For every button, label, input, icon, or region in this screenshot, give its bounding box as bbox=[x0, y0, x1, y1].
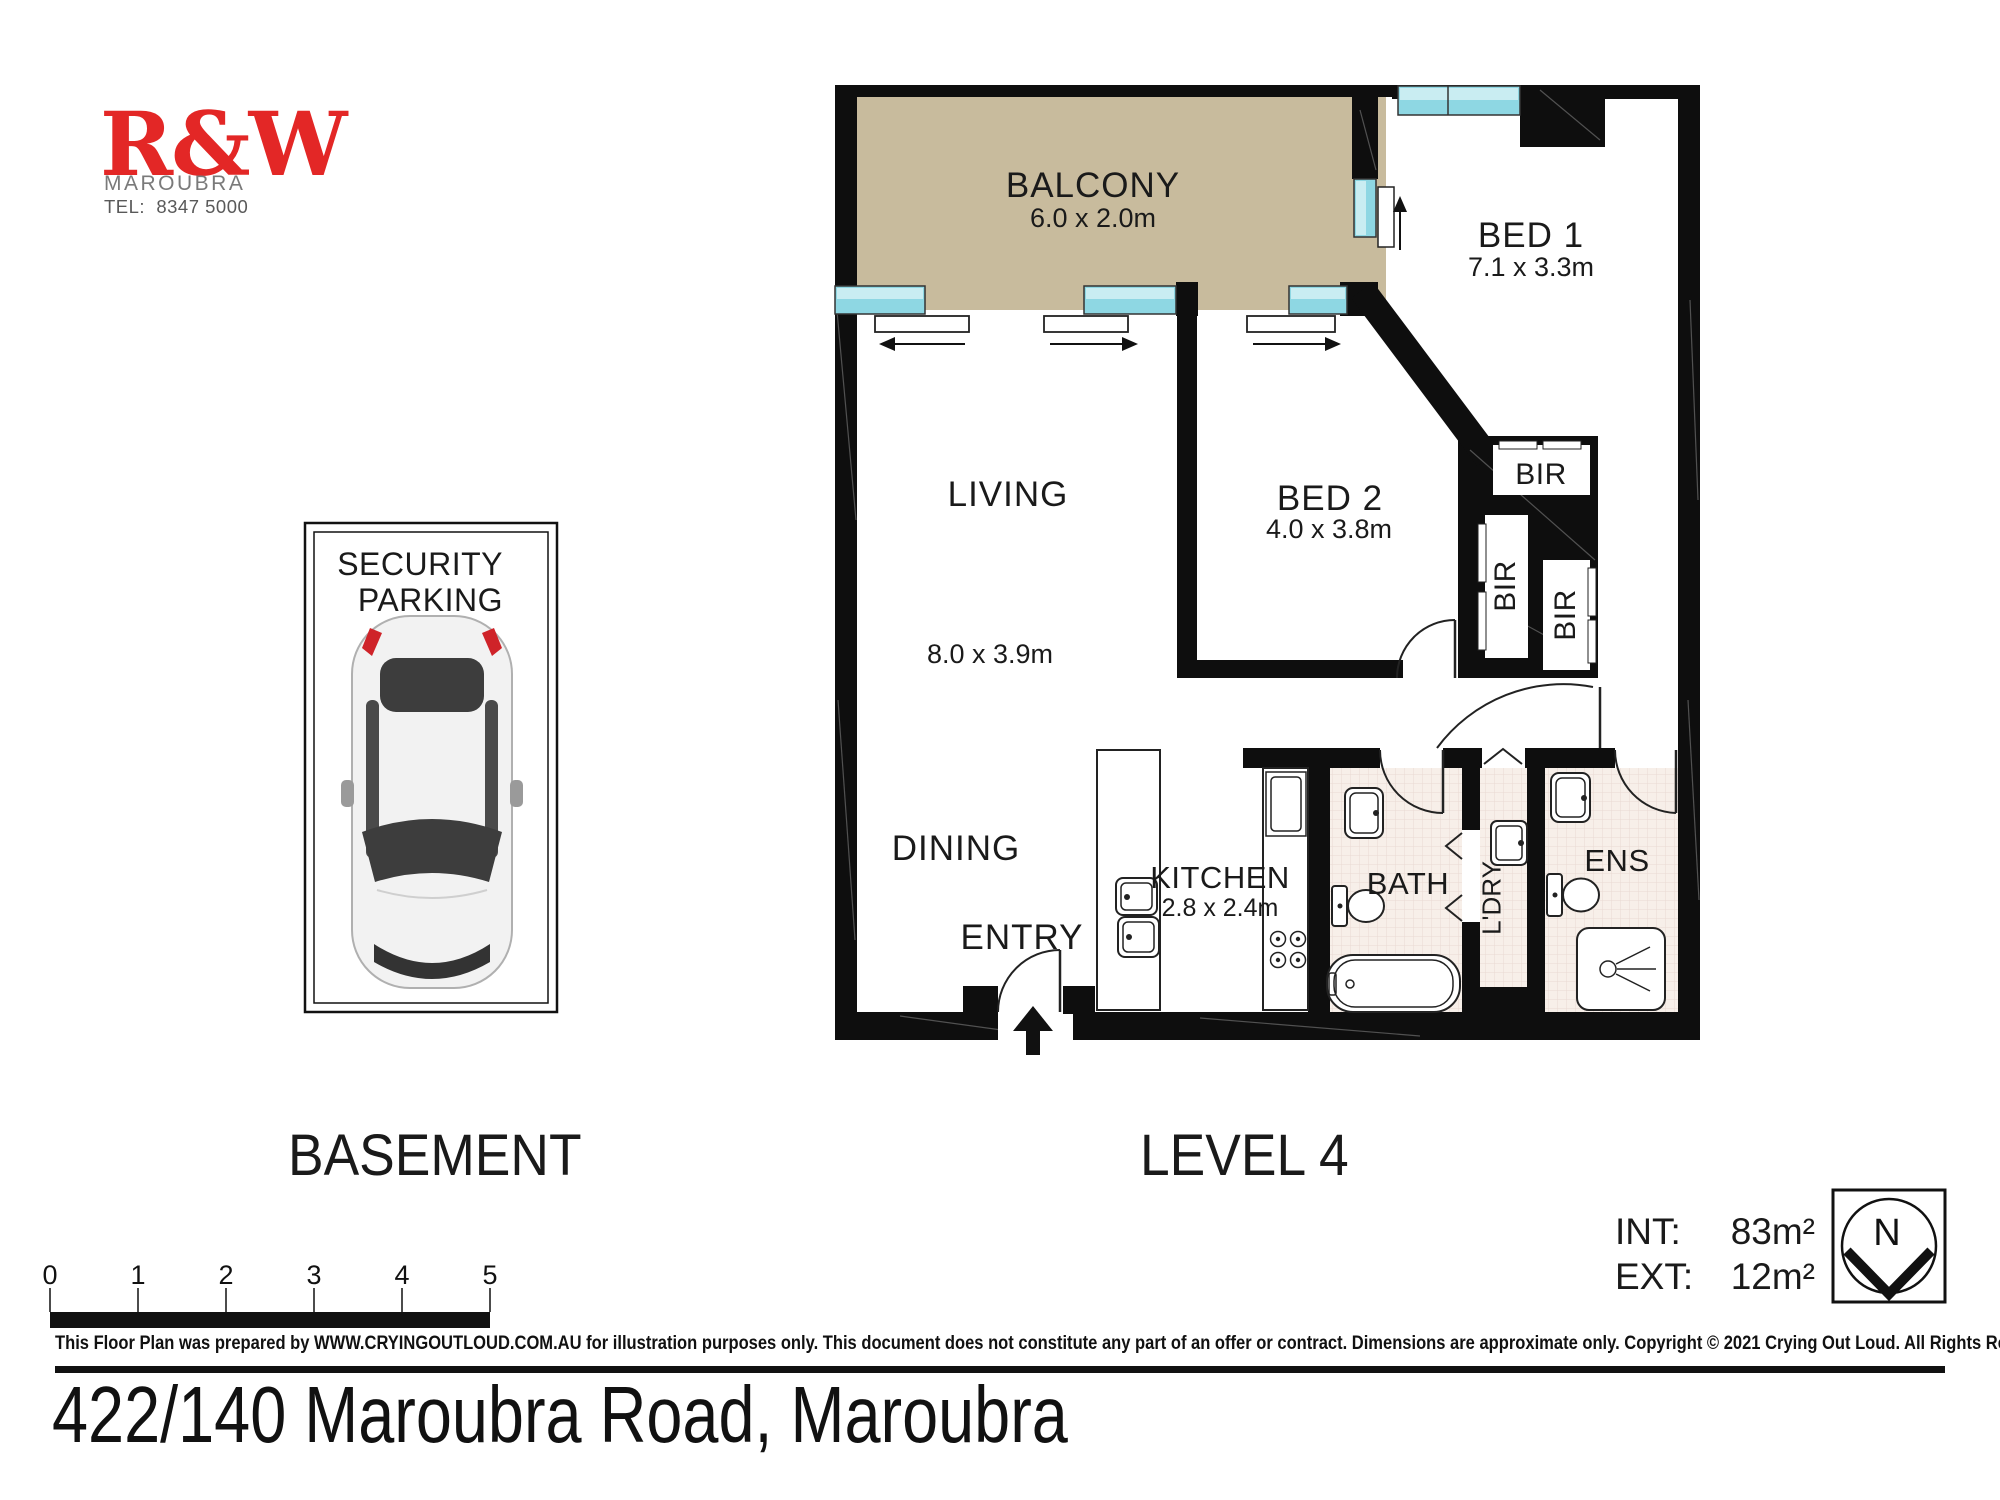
area-summary: INT: 83m² EXT: 12m² bbox=[1615, 1209, 1815, 1299]
scale-tick-label: 1 bbox=[130, 1260, 145, 1290]
agency-suburb-label: MAROUBRA bbox=[104, 172, 245, 196]
entry-door bbox=[998, 950, 1060, 1012]
ensuite-sink bbox=[1551, 773, 1590, 822]
bath-sink bbox=[1345, 788, 1383, 838]
room-label-bath: BATH bbox=[1367, 866, 1449, 902]
robe-label-bir2: BIR bbox=[1489, 560, 1523, 612]
room-label-kitchen: KITCHEN bbox=[1150, 860, 1290, 896]
car-top-view-icon bbox=[341, 616, 523, 988]
security-parking-line1: SECURITY bbox=[337, 546, 503, 582]
security-parking-line2: PARKING bbox=[337, 582, 503, 618]
room-dims-living: 8.0 x 3.9m bbox=[927, 639, 1053, 670]
room-label-living: LIVING bbox=[948, 475, 1069, 515]
bathtub bbox=[1327, 955, 1460, 1012]
scale-tick-label: 5 bbox=[482, 1260, 497, 1290]
north-compass-icon: N bbox=[1833, 1190, 1945, 1302]
laundry-sink bbox=[1491, 821, 1527, 865]
laundry-bifold-door bbox=[1484, 749, 1522, 764]
room-label-entry: ENTRY bbox=[961, 918, 1084, 958]
compass-north-label: N bbox=[1873, 1212, 1900, 1254]
bed2-door bbox=[1397, 620, 1455, 678]
room-dims-balcony: 6.0 x 2.0m bbox=[1030, 203, 1156, 234]
ensuite-toilet bbox=[1547, 874, 1599, 916]
room-label-balcony: BALCONY bbox=[1006, 166, 1180, 206]
hall-door bbox=[1437, 684, 1593, 748]
level-label-basement: BASEMENT bbox=[288, 1122, 582, 1189]
room-dims-kitchen: 2.8 x 2.4m bbox=[1162, 894, 1279, 923]
room-label-ensuite: ENS bbox=[1584, 843, 1649, 879]
room-label-dining: DINING bbox=[892, 829, 1021, 869]
room-label-bed1: BED 1 bbox=[1478, 216, 1584, 256]
level-label-level4: LEVEL 4 bbox=[1140, 1122, 1349, 1189]
ext-area-label: EXT: bbox=[1615, 1254, 1693, 1299]
scale-tick-label: 0 bbox=[42, 1260, 57, 1290]
int-area-value: 83m² bbox=[1731, 1209, 1815, 1254]
property-address: 422/140 Maroubra Road, Maroubra bbox=[52, 1369, 1068, 1461]
disclaimer-text: This Floor Plan was prepared by WWW.CRYI… bbox=[55, 1333, 2000, 1355]
entry-arrow-icon bbox=[1013, 1006, 1053, 1055]
int-area-label: INT: bbox=[1615, 1209, 1681, 1254]
scale-tick-label: 3 bbox=[306, 1260, 321, 1290]
robe-label-bir3: BIR bbox=[1549, 589, 1583, 641]
room-dims-bed2: 4.0 x 3.8m bbox=[1266, 514, 1392, 545]
robe-label-bir1: BIR bbox=[1515, 458, 1567, 492]
security-parking-label: SECURITY PARKING bbox=[337, 546, 503, 618]
scale-tick-label: 4 bbox=[394, 1260, 409, 1290]
ext-area-value: 12m² bbox=[1731, 1254, 1815, 1299]
room-label-bed2: BED 2 bbox=[1277, 479, 1383, 519]
scale-bar: 0 1 2 3 4 5 bbox=[42, 1260, 497, 1328]
room-label-laundry: L'DRY bbox=[1477, 861, 1508, 935]
shower bbox=[1577, 928, 1665, 1010]
room-dims-bed1: 7.1 x 3.3m bbox=[1468, 252, 1594, 283]
scale-tick-label: 2 bbox=[218, 1260, 233, 1290]
floor-plan-page: 0 1 2 3 4 5 N R&W MAROUBRA TEL: 8347 500… bbox=[0, 0, 2000, 1500]
agency-phone-label: TEL: 8347 5000 bbox=[104, 196, 248, 218]
